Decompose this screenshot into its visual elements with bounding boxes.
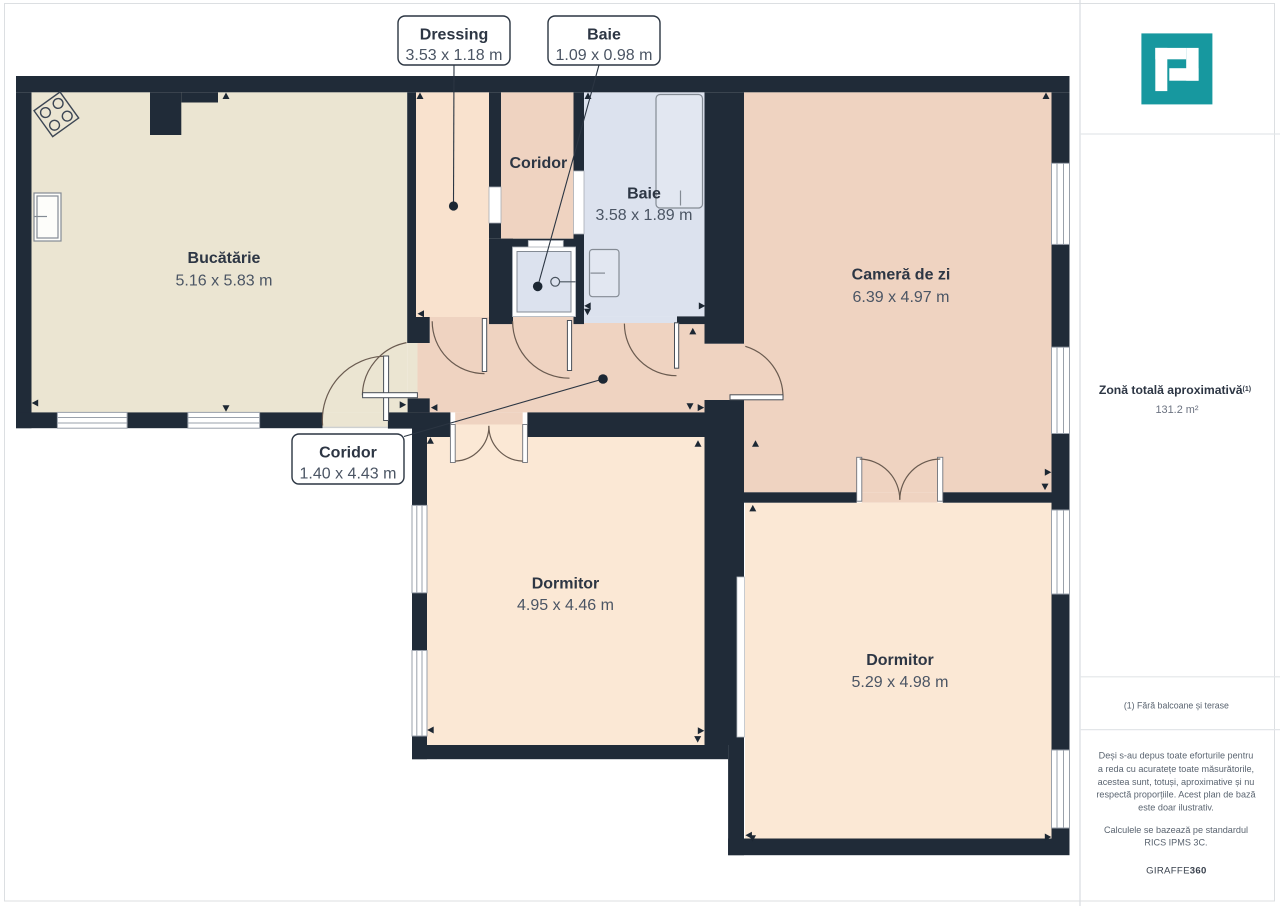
svg-text:1.40 x 4.43 m: 1.40 x 4.43 m bbox=[300, 466, 397, 483]
svg-text:Baie: Baie bbox=[627, 186, 661, 203]
svg-text:131.2 m²: 131.2 m² bbox=[1156, 404, 1199, 416]
svg-text:Bucătărie: Bucătărie bbox=[188, 250, 261, 267]
svg-text:1.09 x 0.98 m: 1.09 x 0.98 m bbox=[556, 47, 653, 64]
svg-text:Zonă totală aproximativă(1): Zonă totală aproximativă(1) bbox=[1099, 383, 1251, 397]
svg-text:respectă proporțiile. Acest pl: respectă proporțiile. Acest plan de bază bbox=[1096, 790, 1256, 800]
svg-text:Coridor: Coridor bbox=[319, 445, 377, 462]
svg-text:Dressing: Dressing bbox=[420, 27, 488, 44]
svg-text:3.53 x 1.18 m: 3.53 x 1.18 m bbox=[406, 47, 503, 64]
svg-text:4.95 x 4.46 m: 4.95 x 4.46 m bbox=[517, 597, 614, 614]
svg-text:Deși s-au depus toate eforturi: Deși s-au depus toate eforturile pentru bbox=[1099, 750, 1254, 760]
svg-text:Baie: Baie bbox=[587, 27, 621, 44]
svg-text:Coridor: Coridor bbox=[510, 155, 568, 172]
svg-text:5.16 x 5.83 m: 5.16 x 5.83 m bbox=[176, 273, 273, 290]
svg-text:GIRAFFE360: GIRAFFE360 bbox=[1146, 866, 1207, 877]
svg-text:Cameră de zi: Cameră de zi bbox=[852, 267, 951, 284]
svg-text:6.39 x 4.97 m: 6.39 x 4.97 m bbox=[853, 289, 950, 306]
svg-text:a reda cu acuratețe toate măsu: a reda cu acuratețe toate măsurătorile, bbox=[1098, 764, 1254, 774]
svg-text:RICS IPMS 3C.: RICS IPMS 3C. bbox=[1144, 838, 1207, 848]
svg-text:acestea sunt, totuși, aproxima: acestea sunt, totuși, aproximative și nu bbox=[1098, 777, 1255, 787]
svg-text:Dormitor: Dormitor bbox=[866, 652, 934, 669]
svg-text:5.29 x 4.98 m: 5.29 x 4.98 m bbox=[852, 674, 949, 691]
svg-text:3.58 x 1.89 m: 3.58 x 1.89 m bbox=[596, 207, 693, 224]
svg-text:este doar ilustrativ.: este doar ilustrativ. bbox=[1138, 803, 1214, 813]
svg-text:Calculele se bazează pe standa: Calculele se bazează pe standardul bbox=[1104, 825, 1248, 835]
svg-text:(1) Fără balcoane și terase: (1) Fără balcoane și terase bbox=[1124, 701, 1229, 711]
svg-text:Dormitor: Dormitor bbox=[532, 576, 600, 593]
